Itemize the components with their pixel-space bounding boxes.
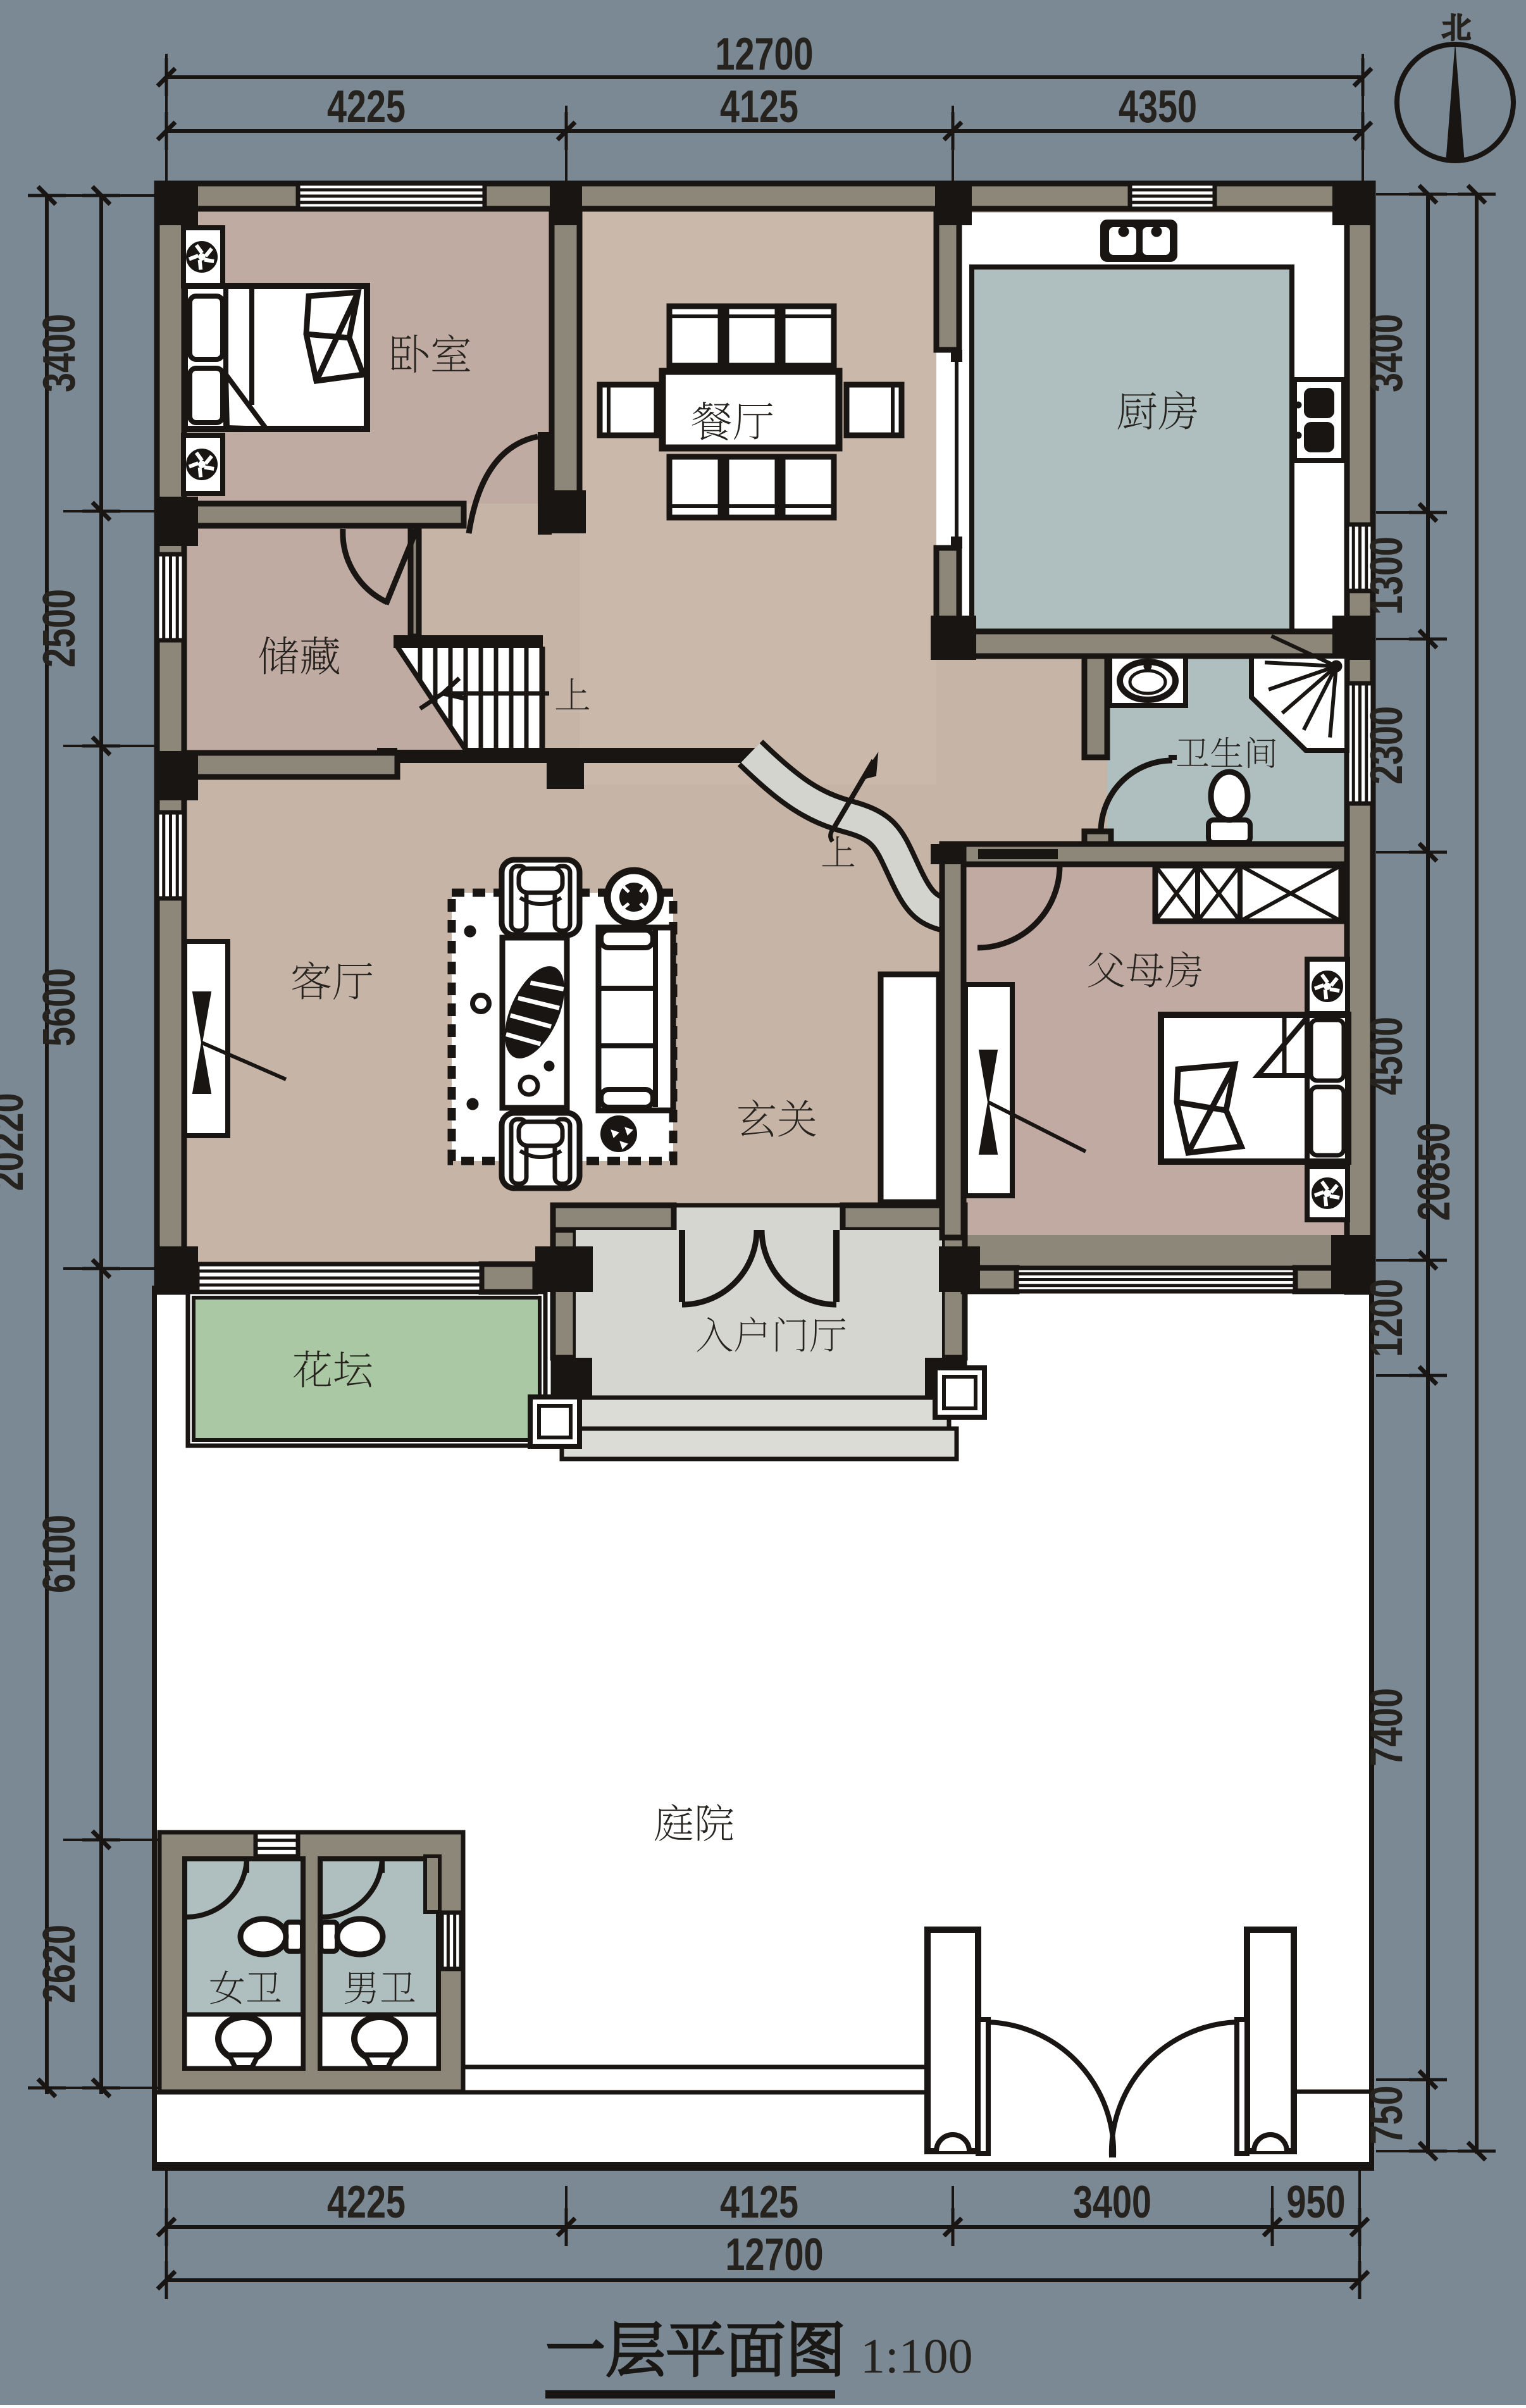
svg-text:20850: 20850 [1409,1123,1460,1221]
svg-text:5600: 5600 [34,968,85,1046]
svg-text:20220: 20220 [0,1093,33,1191]
svg-text:12700: 12700 [716,29,814,80]
svg-text:4500: 4500 [1362,1017,1412,1095]
svg-text:3400: 3400 [34,314,85,392]
svg-text:750: 750 [1362,2086,1412,2145]
svg-text:4125: 4125 [720,2177,798,2228]
svg-text:12700: 12700 [726,2230,824,2280]
svg-text:950: 950 [1287,2177,1346,2228]
svg-text:1:100: 1:100 [860,2328,973,2383]
svg-text:3400: 3400 [1073,2177,1151,2228]
svg-text:4125: 4125 [720,82,798,132]
svg-text:2620: 2620 [34,1925,85,2003]
svg-text:3400: 3400 [1362,314,1412,392]
svg-text:2300: 2300 [1362,706,1412,785]
svg-text:4225: 4225 [327,82,406,132]
svg-text:7400: 7400 [1362,1688,1412,1766]
svg-text:2500: 2500 [34,589,85,667]
svg-text:6100: 6100 [34,1515,85,1593]
svg-text:1200: 1200 [1362,1279,1412,1357]
svg-text:4225: 4225 [327,2177,406,2228]
svg-text:1300: 1300 [1362,537,1412,615]
svg-text:4350: 4350 [1119,82,1197,132]
